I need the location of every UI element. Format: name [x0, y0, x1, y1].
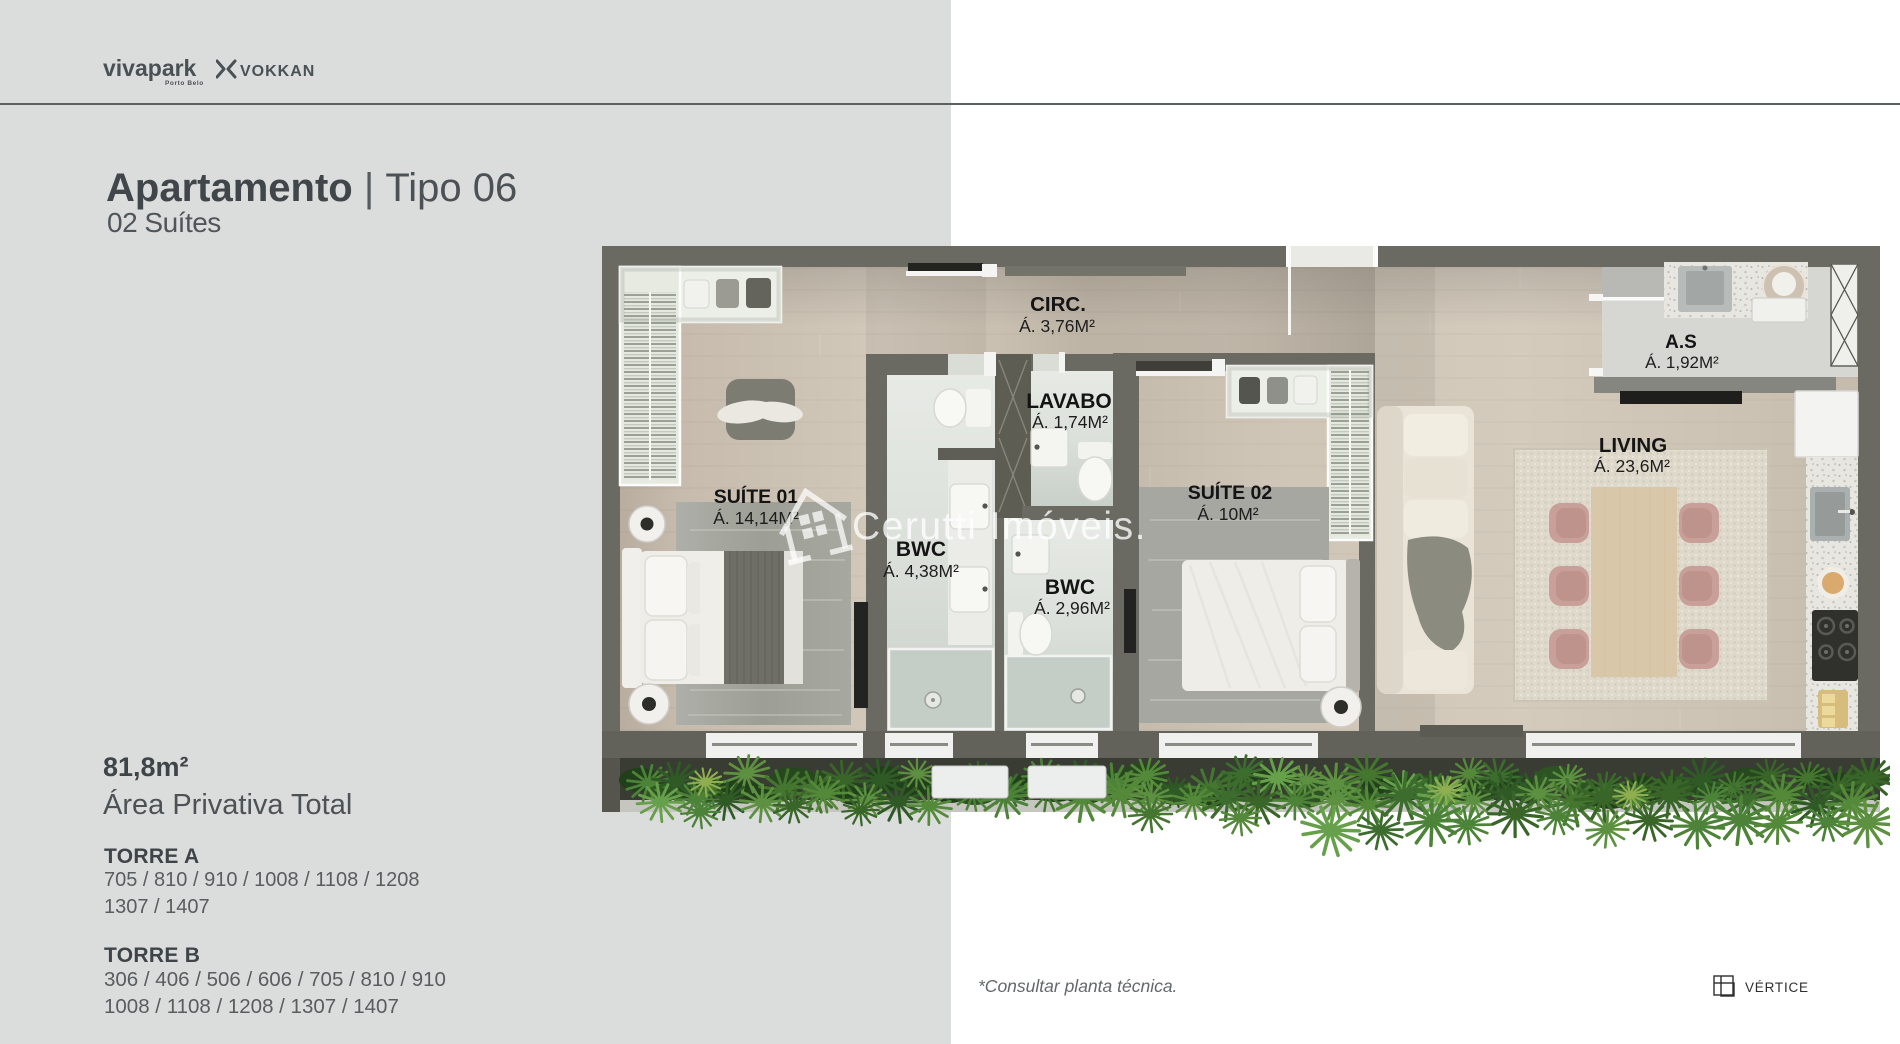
svg-text:Cerutti Imóveis.: Cerutti Imóveis.	[852, 505, 1147, 548]
svg-text:VOKKAN: VOKKAN	[240, 63, 315, 80]
svg-text:VÉRTICE: VÉRTICE	[1745, 980, 1809, 995]
svg-text:CIRC.: CIRC.	[1030, 293, 1086, 316]
svg-text:SUÍTE 01: SUÍTE 01	[714, 485, 799, 508]
svg-text:LAVABO: LAVABO	[1026, 390, 1112, 413]
svg-text:SUÍTE 02: SUÍTE 02	[1188, 481, 1273, 504]
svg-text:Á. 23,6M²: Á. 23,6M²	[1594, 456, 1670, 476]
svg-text:BWC: BWC	[1045, 576, 1095, 599]
svg-text:A.S: A.S	[1665, 332, 1697, 353]
svg-text:Á. 1,74M²: Á. 1,74M²	[1032, 412, 1108, 432]
svg-text:Á. 2,96M²: Á. 2,96M²	[1034, 598, 1110, 618]
svg-text:Á. 10M²: Á. 10M²	[1197, 504, 1258, 524]
svg-text:Á. 3,76M²: Á. 3,76M²	[1019, 316, 1095, 336]
svg-text:LIVING: LIVING	[1599, 434, 1667, 457]
svg-text:Á. 1,92M²: Á. 1,92M²	[1645, 353, 1719, 372]
svg-text:Á. 4,38M²: Á. 4,38M²	[883, 561, 959, 581]
